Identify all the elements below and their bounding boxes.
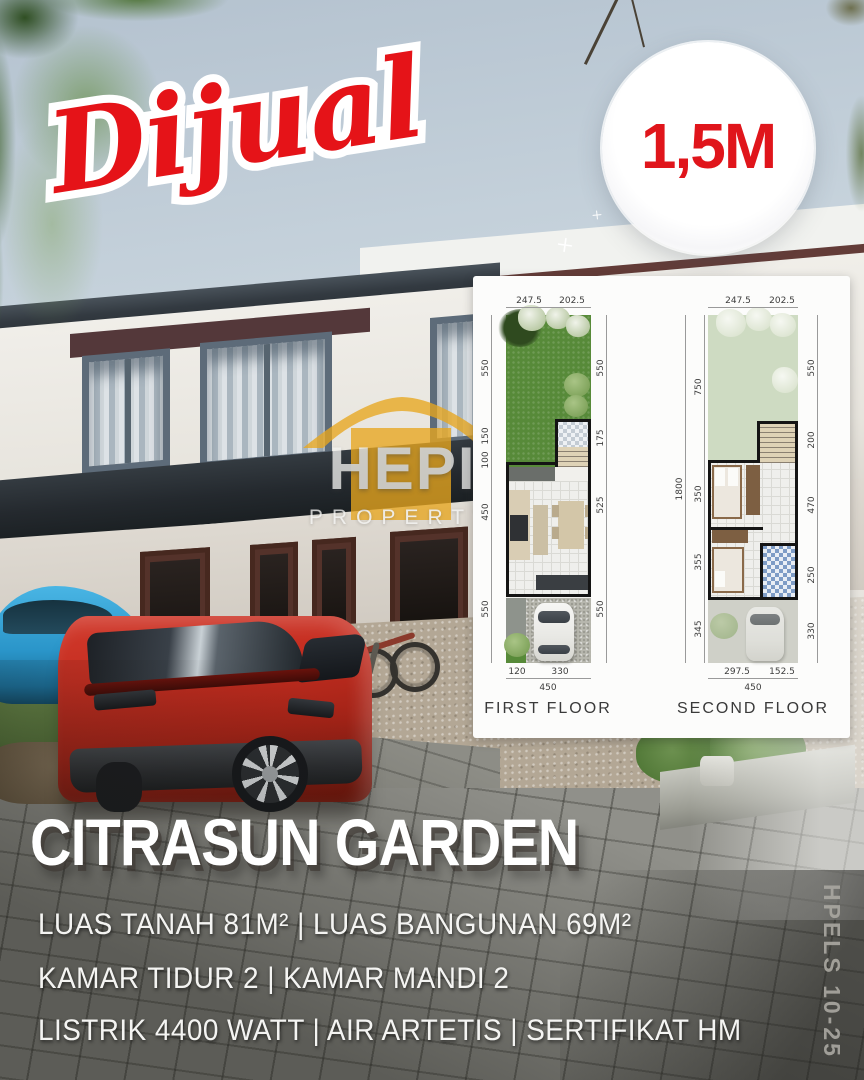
dim-line [704, 315, 705, 663]
dim-label: 120 [508, 667, 525, 677]
dim-label: 450 [481, 503, 491, 520]
dim-label: 330 [807, 622, 817, 639]
wall-segment [506, 462, 509, 597]
dim-label: 525 [596, 496, 606, 513]
dim-label: 550 [481, 359, 491, 376]
dim-line [708, 678, 798, 679]
dim-label: 330 [551, 667, 568, 677]
wall-segment [506, 594, 591, 597]
tree-icon [772, 367, 798, 393]
sparkle-icon [592, 210, 602, 220]
pillow [715, 468, 725, 486]
bush-icon [564, 395, 588, 417]
chair [552, 505, 559, 517]
kitchen-island [533, 505, 548, 555]
dim-label: 1800 [675, 478, 685, 501]
detail-line: LISTRIK 4400 WATT | AIR ARTETIS | SERTIF… [38, 1014, 742, 1048]
dim-label: 550 [481, 600, 491, 617]
tree-icon [518, 305, 546, 331]
wall-segment [708, 527, 763, 530]
price-text: 1,5M [641, 109, 775, 183]
windshield [538, 611, 570, 623]
stairs [760, 423, 795, 463]
bush-icon [710, 613, 738, 639]
dim-label: 750 [694, 378, 704, 395]
wall-segment [757, 421, 760, 463]
dim-label: 175 [596, 429, 606, 446]
hall-floor [506, 467, 555, 481]
wall-segment [588, 419, 591, 597]
chair [552, 527, 559, 539]
tree-icon [566, 315, 590, 337]
garden-area [506, 421, 555, 467]
pillow [715, 571, 725, 587]
tree-icon [770, 313, 796, 337]
dim-label: 297.5 [724, 667, 750, 677]
bush-icon [504, 633, 530, 657]
wall-segment [555, 419, 558, 467]
dim-label: 202.5 [769, 296, 795, 306]
dim-label: 202.5 [559, 296, 585, 306]
second-floor-label: SECOND FLOOR [677, 700, 829, 718]
stairs [558, 447, 591, 467]
wardrobe [746, 465, 760, 515]
pillow [728, 468, 738, 486]
dim-line [708, 307, 798, 308]
dim-label: 550 [807, 359, 817, 376]
first-floor-plan [506, 315, 591, 663]
bush-icon [564, 373, 590, 397]
price-badge: 1,5M [602, 42, 814, 254]
wall-segment [757, 421, 798, 424]
second-floor-plan [708, 315, 798, 663]
first-floor-label: FIRST FLOOR [484, 700, 612, 718]
project-title: CITRASUN GARDEN [30, 804, 578, 880]
wardrobe [712, 529, 748, 543]
dim-label: 550 [596, 359, 606, 376]
dim-line [606, 315, 607, 663]
car-top-view [746, 607, 784, 661]
wall-segment [555, 419, 591, 422]
windshield [750, 614, 780, 625]
dim-line [685, 315, 686, 663]
dim-label: 247.5 [516, 296, 542, 306]
appliance [510, 515, 528, 541]
dim-label: 470 [807, 496, 817, 513]
dim-label: 450 [744, 683, 761, 693]
dim-label: 100 [481, 451, 491, 468]
dim-label: 250 [807, 566, 817, 583]
dim-line [491, 315, 492, 663]
dim-label: 247.5 [725, 296, 751, 306]
wall-segment [708, 460, 711, 600]
wall-segment [708, 597, 798, 600]
door-glass [400, 538, 458, 628]
dim-label: 450 [539, 683, 556, 693]
bathroom-tiles [763, 545, 795, 597]
rear-window [538, 645, 570, 654]
dim-label: 355 [694, 553, 704, 570]
dim-line [817, 315, 818, 663]
detail-line: LUAS TANAH 81M² | LUAS BANGUNAN 69M² [38, 908, 631, 942]
wall-segment [760, 543, 798, 546]
rear-counter [536, 575, 589, 590]
wall-segment [708, 460, 760, 463]
wall-segment [760, 543, 763, 600]
sparkle-icon [557, 237, 573, 253]
tree-icon [746, 307, 772, 331]
dim-line [506, 307, 591, 308]
dim-label: 550 [596, 600, 606, 617]
dim-label: 200 [807, 431, 817, 448]
tree-icon [716, 309, 746, 337]
wall-segment [506, 462, 558, 465]
dim-label: 350 [694, 485, 704, 502]
dining-table [558, 501, 584, 549]
floorplan-panel: 247.5 202.5 550 150 100 450 550 550 175 … [473, 276, 850, 738]
dim-line [506, 678, 591, 679]
dim-label: 152.5 [769, 667, 795, 677]
dim-label: 345 [694, 620, 704, 637]
listing-code: HPELS 10-25 [818, 884, 845, 1076]
bathroom-tiles [555, 421, 591, 447]
car-top-view [534, 603, 574, 661]
wall-segment [795, 421, 798, 600]
dim-label: 150 [481, 427, 491, 444]
detail-line: KAMAR TIDUR 2 | KAMAR MANDI 2 [38, 962, 509, 996]
property-flyer: HEPI PROPERTY Dijual Dijual 1,5M [0, 0, 864, 1080]
